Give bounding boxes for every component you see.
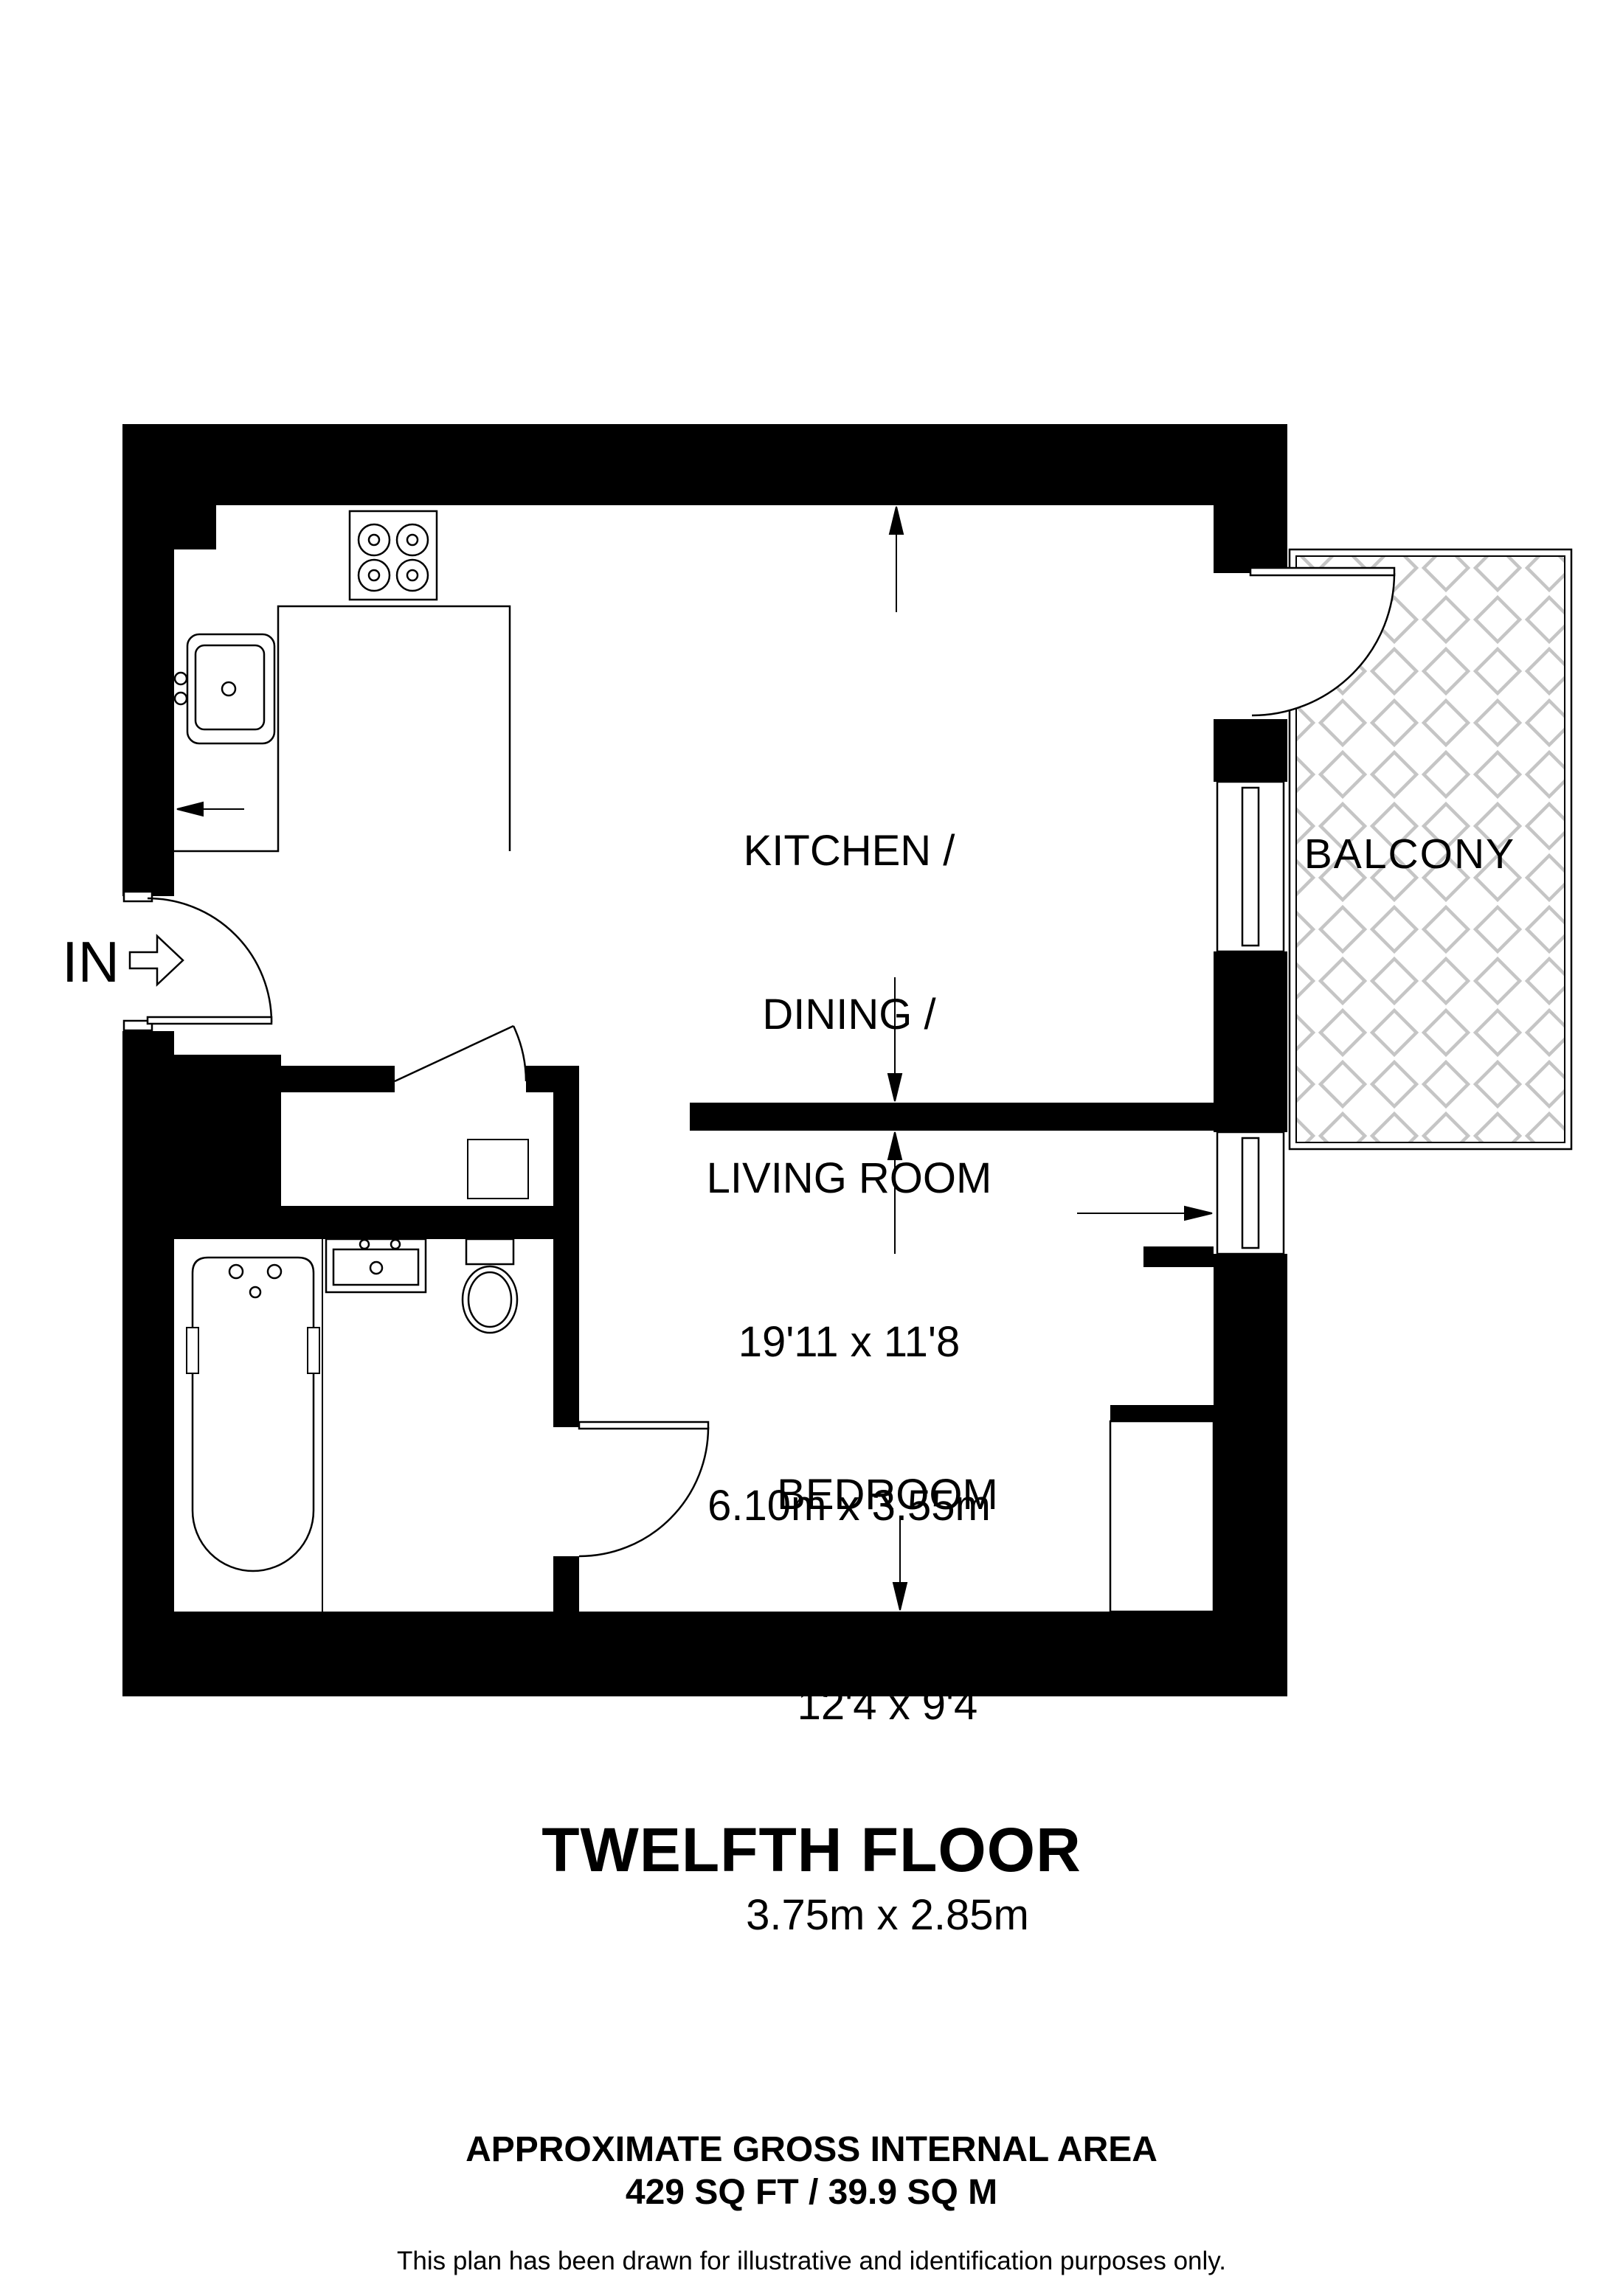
left-wall-lower	[122, 1031, 174, 1696]
room-name-line: LIVING ROOM	[554, 1151, 1144, 1206]
room-name-line: DINING /	[554, 988, 1144, 1042]
bath-drain	[250, 1287, 260, 1297]
gross-area-value: 429 SQ FT / 39.9 SQ M	[0, 2171, 1623, 2214]
bedroom-window-glazing	[1242, 1138, 1259, 1248]
bedroom-window-stub	[1143, 1246, 1214, 1267]
sink-tap	[175, 673, 187, 684]
entrance-door-leaf	[148, 1017, 271, 1024]
bathroom-top-wall	[174, 1206, 553, 1239]
room-dims-imperial: 12'4 x 9'4	[592, 1670, 1183, 1740]
bath-handle	[308, 1328, 319, 1373]
bedroom-label: BEDROOM 12'4 x 9'4 3.75m x 2.85m	[592, 1319, 1183, 2090]
floor-plan-page: KITCHEN / DINING / LIVING ROOM 19'11 x 1…	[0, 0, 1623, 2296]
hall-door-arc	[513, 1026, 526, 1081]
basin	[326, 1239, 426, 1292]
floor-title: TWELFTH FLOOR	[0, 1816, 1623, 1884]
sink-drain	[222, 682, 235, 696]
kitchen-fixtures	[174, 511, 510, 851]
room-dims-metric: 3.75m x 2.85m	[592, 1880, 1183, 1950]
entrance-threshold-top	[124, 892, 152, 901]
disclaimer-text: This plan has been drawn for illustrativ…	[0, 2245, 1623, 2278]
kitchen-corner-step	[174, 505, 216, 549]
right-wall-between-door-window	[1214, 719, 1287, 782]
right-wall-top-column	[1214, 505, 1287, 573]
bath-tap	[268, 1265, 281, 1278]
top-wall	[122, 424, 1287, 505]
hall-door-leaf	[395, 1026, 513, 1081]
gross-area-heading: APPROXIMATE GROSS INTERNAL AREA	[0, 2129, 1623, 2171]
left-wall-arrow	[177, 802, 244, 816]
hob-burners	[359, 524, 428, 591]
bath-handle	[187, 1328, 198, 1373]
living-room-window-glazing	[1242, 788, 1259, 946]
basin-tap	[360, 1240, 369, 1249]
toilet	[463, 1239, 517, 1333]
room-name-line: KITCHEN /	[554, 824, 1144, 878]
hall-wall-right	[526, 1066, 553, 1092]
balcony-door-leaf	[1250, 568, 1394, 575]
top-wall-arrow	[890, 507, 903, 612]
basin-tap	[391, 1240, 400, 1249]
bathtub	[187, 1258, 319, 1571]
entrance-in-label: IN	[43, 931, 139, 993]
hall-wall-left	[281, 1066, 395, 1092]
kitchen-sink	[175, 634, 274, 743]
room-name-line: BEDROOM	[592, 1460, 1183, 1530]
sink-tap	[175, 693, 187, 704]
basin-drain	[370, 1262, 382, 1274]
toilet-cistern	[466, 1239, 513, 1264]
hall-cupboard-unit	[468, 1140, 528, 1199]
balcony-label: BALCONY	[1284, 833, 1535, 875]
bath-tap	[229, 1265, 243, 1278]
right-wall-mid	[1214, 951, 1287, 1132]
